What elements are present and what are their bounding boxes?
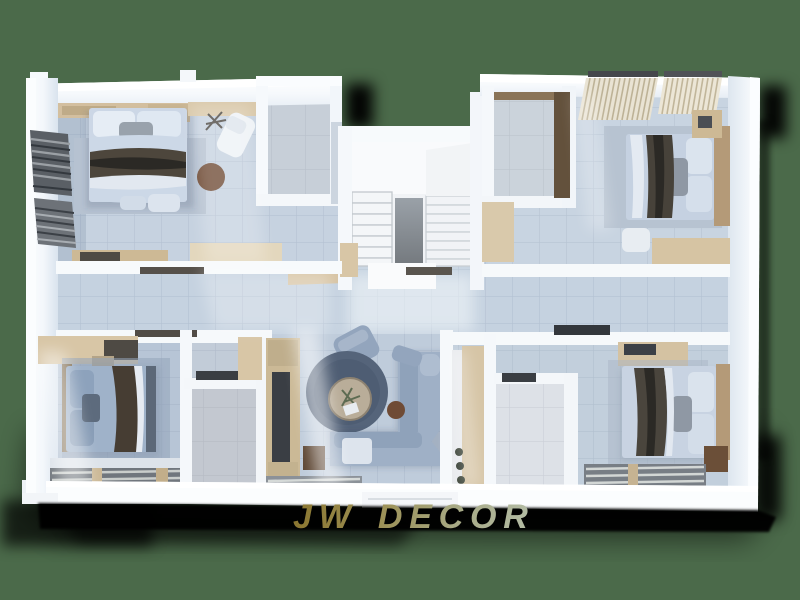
svg-text:JW DECOR: JW DECOR: [293, 498, 535, 536]
